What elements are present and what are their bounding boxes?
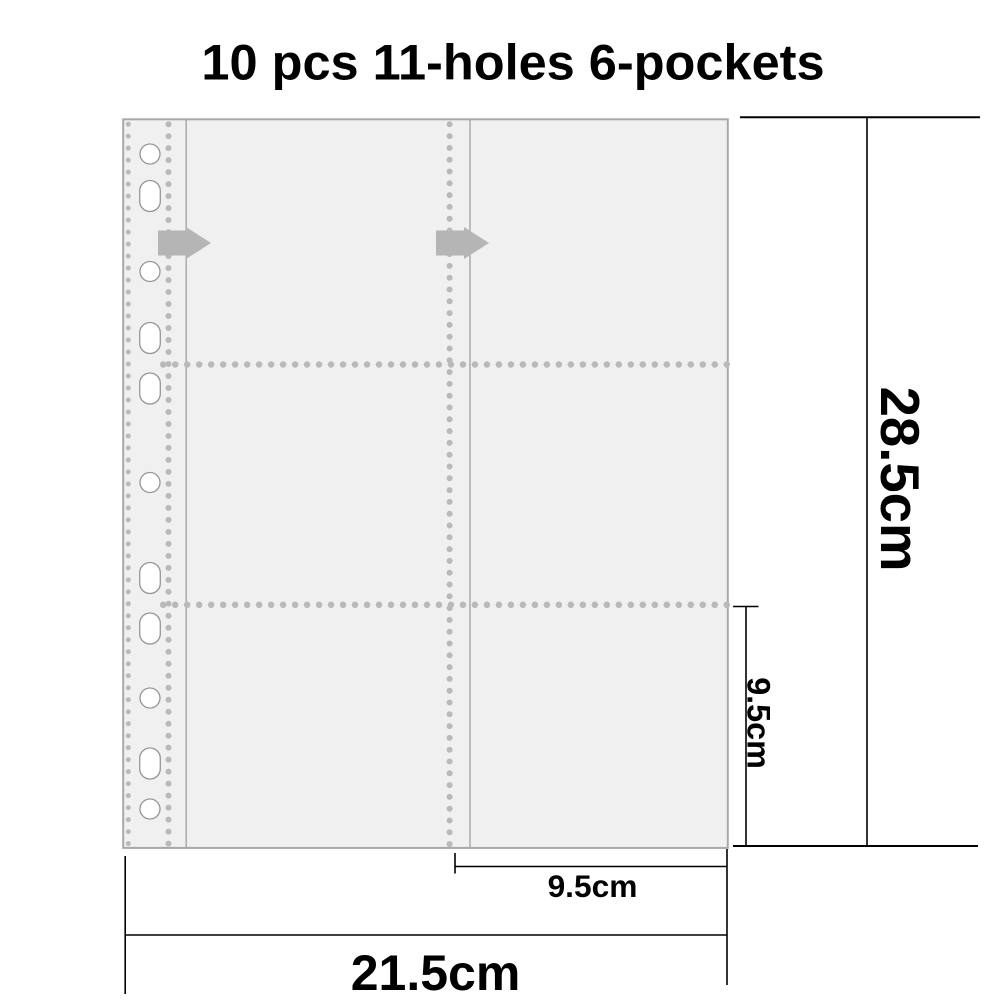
svg-text:21.5cm: 21.5cm [351, 945, 521, 1000]
svg-text:10 pcs 11-holes 6-pockets: 10 pcs 11-holes 6-pockets [201, 34, 824, 91]
svg-text:9.5cm: 9.5cm [548, 868, 638, 904]
svg-text:9.5cm: 9.5cm [741, 677, 777, 769]
svg-text:28.5cm: 28.5cm [869, 387, 930, 572]
